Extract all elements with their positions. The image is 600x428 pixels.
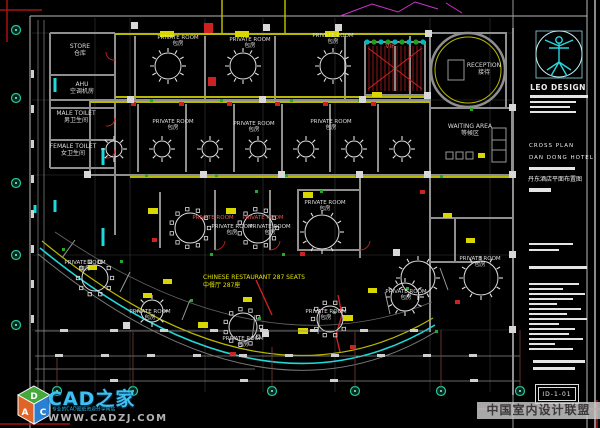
misc-marks [35,2,462,246]
walls [50,28,513,395]
site-tagline: 专业的CAD图纸资源分享网站 [52,405,115,412]
wall-accent-lines [90,0,513,177]
site-url: WWW.CADZJ.COM [48,413,168,424]
curved-facade [38,232,437,370]
cadzj-cube-logo: D A C [16,384,52,426]
vitruvian-man-figure [545,37,573,76]
cube-letter-left: A [22,408,29,418]
sheet-number: ID-1-01 [538,387,576,401]
cube-letter-right: C [40,408,47,418]
leo-design-vitruvian-logo [531,28,587,84]
cube-letter-top: D [30,392,37,402]
sheet-number-box: ID-1-01 [535,384,579,404]
staircase [364,39,425,91]
alliance-watermark: 中国室内设计联盟 [477,402,600,419]
floorplan-drawing [0,0,600,428]
cad-drawing-viewport: STORE仓库 AHU空调机房 MALE TOILET男卫生间 FEMALE T… [0,0,600,428]
